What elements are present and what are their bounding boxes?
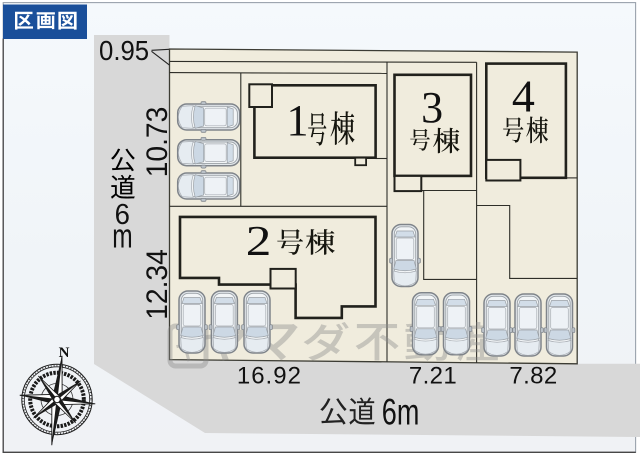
svg-text:7.82: 7.82 <box>509 363 557 390</box>
svg-text:2: 2 <box>246 218 272 265</box>
svg-text:N: N <box>59 345 70 361</box>
svg-text:16.92: 16.92 <box>237 363 302 390</box>
svg-text:6m: 6m <box>382 391 420 432</box>
svg-text:1: 1 <box>287 96 309 145</box>
svg-text:3: 3 <box>421 83 443 132</box>
svg-text:12.34: 12.34 <box>141 249 174 320</box>
svg-text:10.73: 10.73 <box>141 107 174 178</box>
svg-text:7.21: 7.21 <box>409 363 457 390</box>
svg-text:0.95: 0.95 <box>99 35 149 66</box>
svg-text:m: m <box>112 218 132 256</box>
svg-text:4: 4 <box>512 71 535 122</box>
